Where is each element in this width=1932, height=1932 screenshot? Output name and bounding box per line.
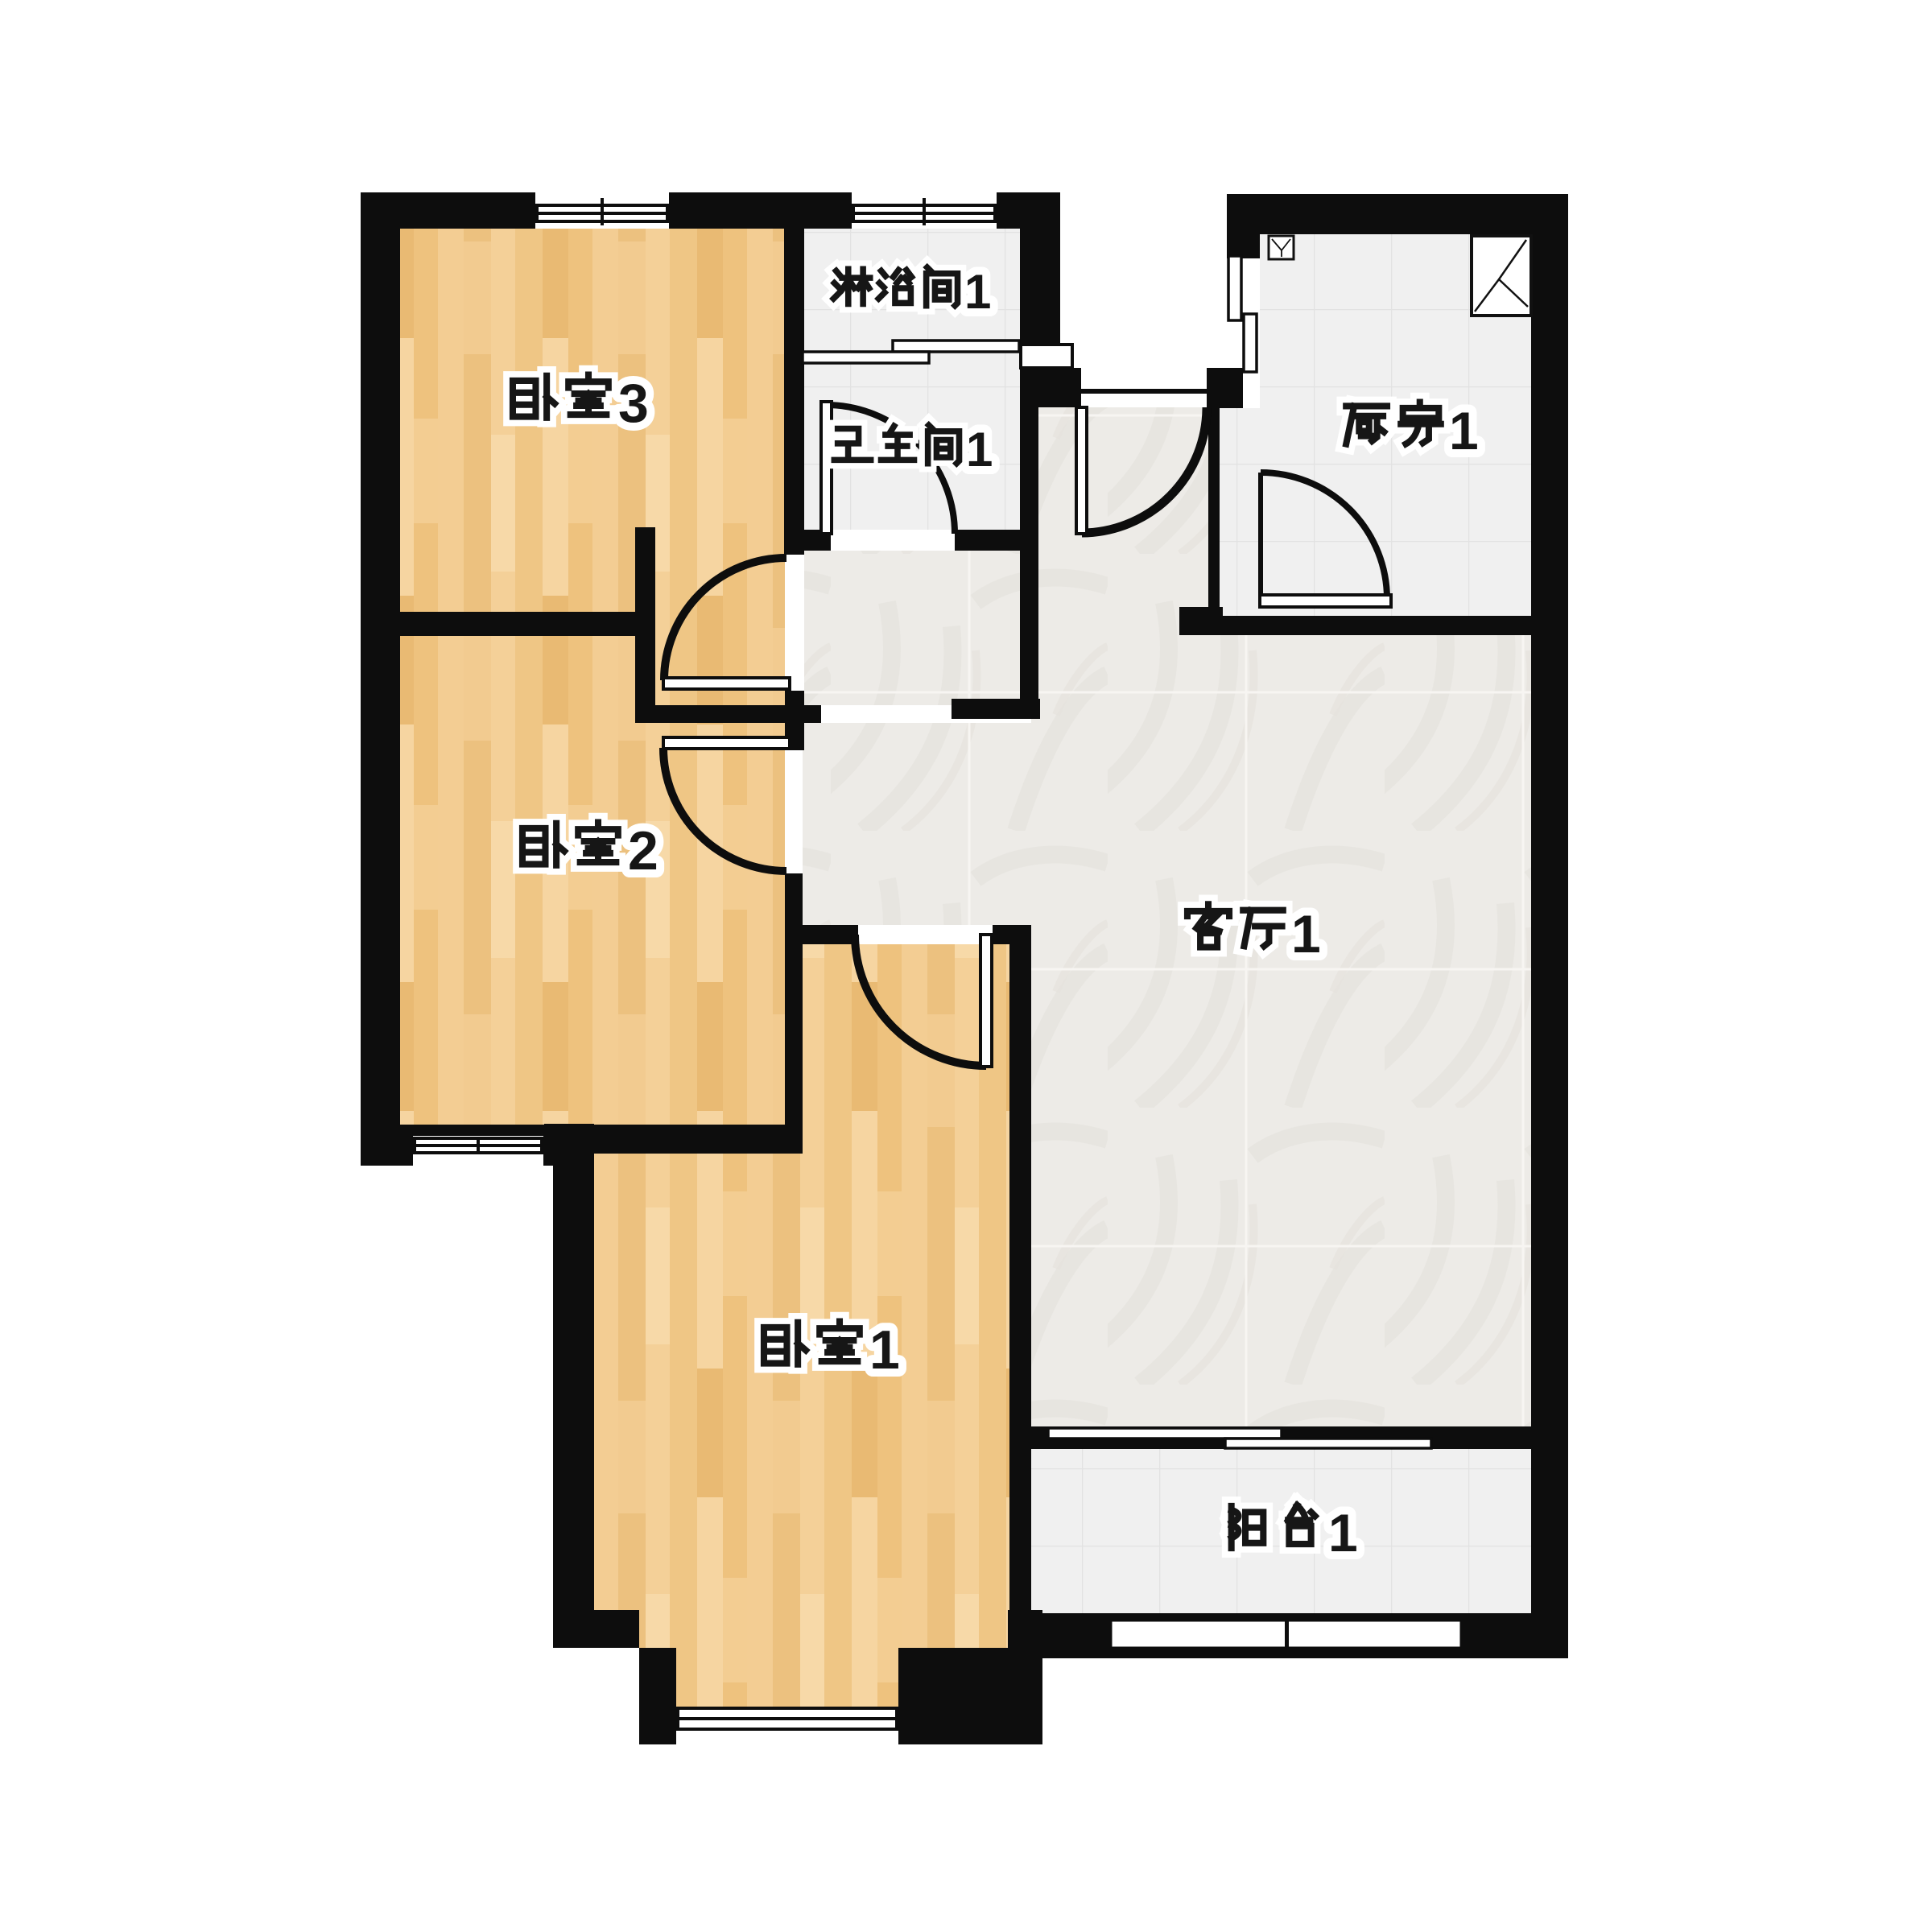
svg-text:1: 1	[1291, 904, 1321, 964]
svg-text:1: 1	[869, 1319, 900, 1381]
svg-text:3: 3	[618, 373, 649, 434]
svg-text:1: 1	[1328, 1503, 1358, 1563]
svg-text:1: 1	[966, 423, 993, 477]
svg-text:1: 1	[1449, 401, 1479, 460]
svg-text:2: 2	[628, 820, 658, 881]
svg-text:1: 1	[964, 265, 991, 319]
